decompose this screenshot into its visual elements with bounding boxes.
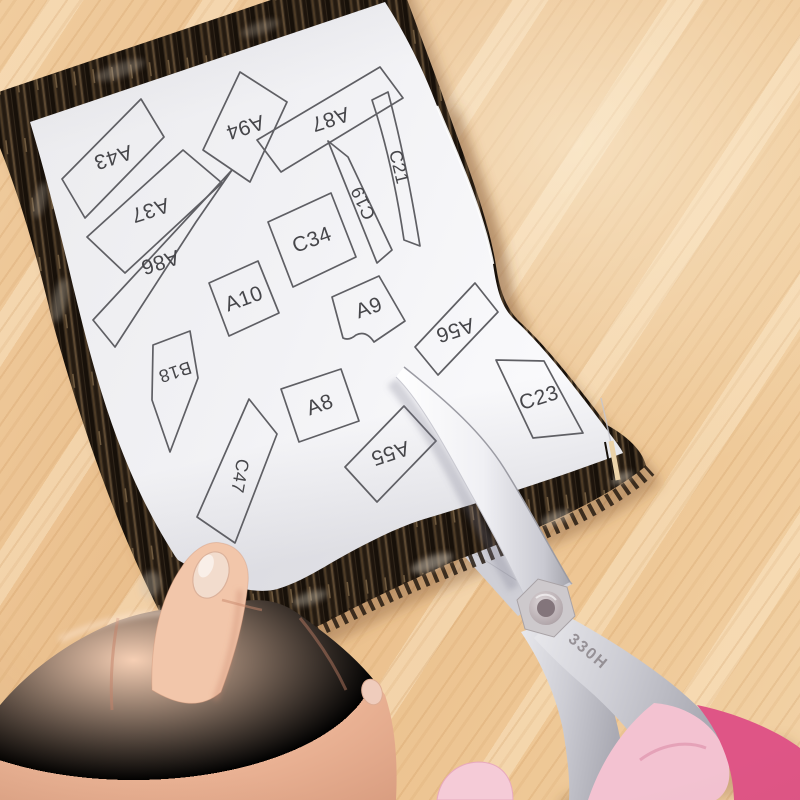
photo-scene: A43 A37 A86 A94 A87 C21 C19 C34 <box>0 0 800 800</box>
pivot-screw-center <box>537 599 555 617</box>
photo-canvas: A43 A37 A86 A94 A87 C21 C19 C34 <box>0 0 800 800</box>
second-grip-tip <box>437 762 513 800</box>
scissors-handles: 330H <box>437 579 800 800</box>
